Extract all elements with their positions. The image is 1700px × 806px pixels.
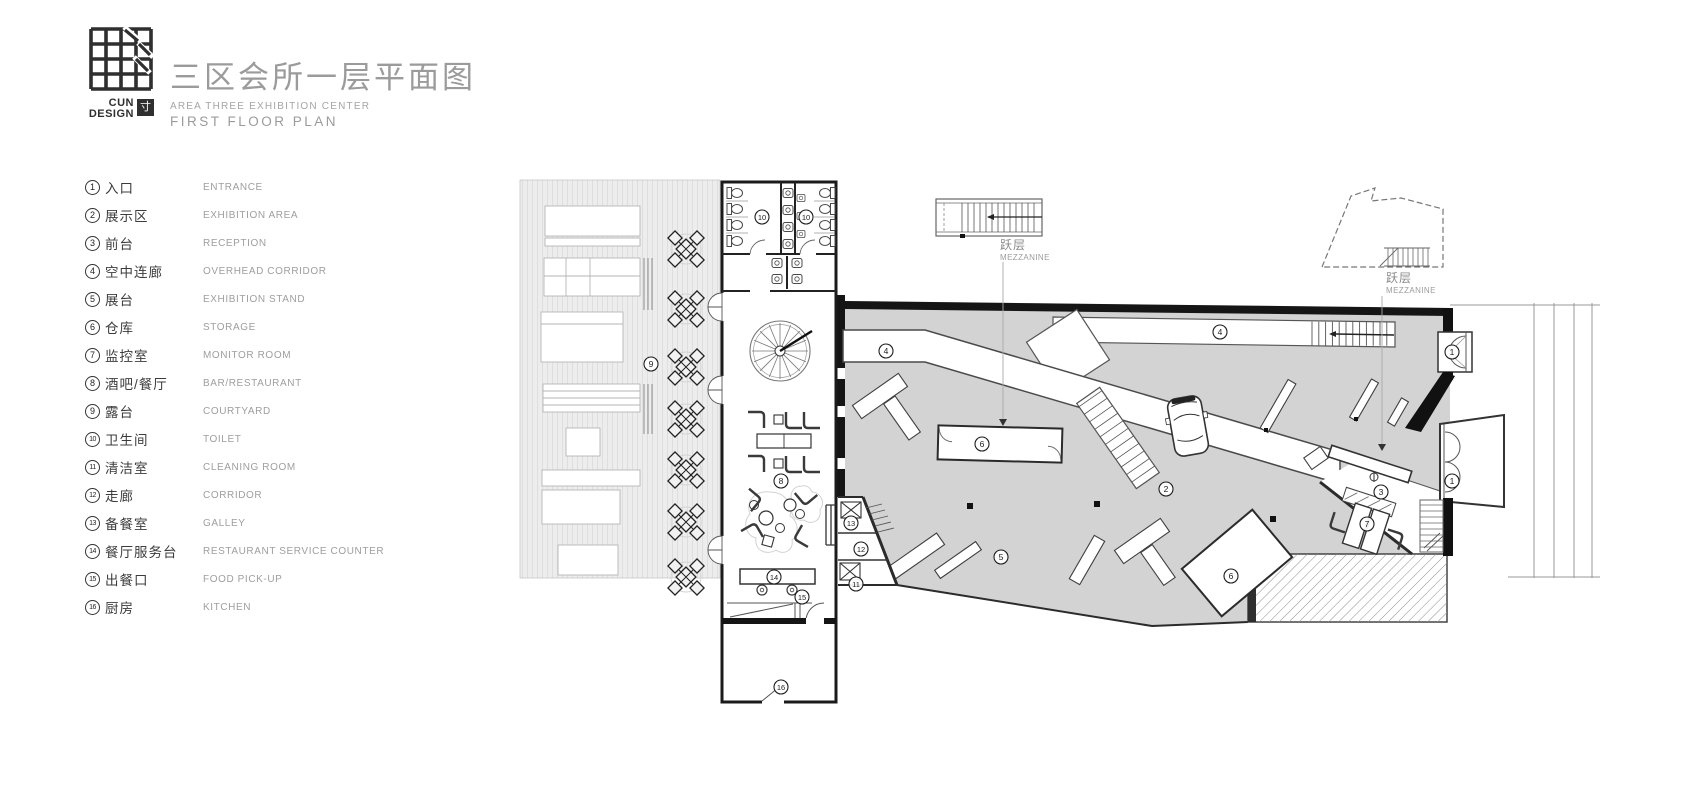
svg-text:12: 12 <box>857 545 865 554</box>
floor-plan-sheet: CUN DESIGN 寸 三区会所一层平面图 AREA THREE EXHIBI… <box>0 0 1700 806</box>
plan-label-overhead-corridor: 4 <box>879 344 893 358</box>
plan-label-reception: 3 <box>1374 485 1388 499</box>
plan-label-entrance: 1 <box>1445 474 1459 488</box>
svg-text:15: 15 <box>798 593 806 602</box>
plan-label-exhibition-stand: 5 <box>994 550 1008 564</box>
plan-label-restaurant-service-counter: 14 <box>767 570 781 584</box>
bar-restaurant-building <box>708 182 836 705</box>
storage-room-center <box>938 425 1063 462</box>
svg-text:2: 2 <box>1164 484 1169 494</box>
floor-plan-drawing: 跃层MEZZANINE跃层MEZZANINE 91010448131211141… <box>0 0 1700 806</box>
plan-label-cleaning-room: 11 <box>849 577 863 591</box>
svg-text:8: 8 <box>779 476 784 486</box>
mezzanine-bridge-drawing <box>936 199 1042 238</box>
svg-text:5: 5 <box>999 552 1004 562</box>
svg-text:6: 6 <box>980 439 985 449</box>
plan-label-bar-restaurant: 8 <box>774 474 788 488</box>
svg-text:16: 16 <box>777 683 785 692</box>
plan-label-courtyard: 9 <box>644 357 658 371</box>
svg-text:6: 6 <box>1229 571 1234 581</box>
svg-text:跃层: 跃层 <box>1000 238 1026 252</box>
courtyard-terrace <box>520 180 720 595</box>
plan-label-storage: 6 <box>1224 569 1238 583</box>
entrance-vestibule-south <box>1440 415 1504 507</box>
plan-label-corridor: 12 <box>854 542 868 556</box>
svg-text:9: 9 <box>649 359 654 369</box>
plan-label-toilet: 10 <box>755 210 769 224</box>
mezzanine-label: 跃层MEZZANINE <box>1000 238 1050 262</box>
plan-label-toilet: 10 <box>799 210 813 224</box>
plan-label-overhead-corridor: 4 <box>1213 325 1227 339</box>
svg-text:1: 1 <box>1450 476 1455 486</box>
svg-text:MEZZANINE: MEZZANINE <box>1000 253 1050 262</box>
svg-text:10: 10 <box>802 213 810 222</box>
section-marker <box>1370 472 1378 482</box>
plan-label-exhibition-area: 2 <box>1159 482 1173 496</box>
svg-text:14: 14 <box>770 573 778 582</box>
plan-label-galley: 13 <box>844 516 858 530</box>
svg-text:11: 11 <box>852 580 860 589</box>
svg-text:MEZZANINE: MEZZANINE <box>1386 286 1436 295</box>
exhibition-hall <box>836 262 1504 626</box>
plan-label-monitor-room: 7 <box>1360 517 1374 531</box>
southeast-staircase <box>1420 500 1443 552</box>
svg-text:4: 4 <box>1218 327 1223 337</box>
svg-text:13: 13 <box>847 519 855 528</box>
plan-label-food-pick-up: 15 <box>795 590 809 604</box>
plan-label-kitchen: 16 <box>774 680 788 694</box>
svg-text:4: 4 <box>884 346 889 356</box>
svg-text:3: 3 <box>1379 487 1384 497</box>
svg-text:1: 1 <box>1450 347 1455 357</box>
plan-label-entrance: 1 <box>1445 345 1459 359</box>
plan-label-storage: 6 <box>975 437 989 451</box>
svg-text:7: 7 <box>1365 519 1370 529</box>
mezzanine-outline-drawing <box>1322 188 1443 267</box>
svg-text:10: 10 <box>758 213 766 222</box>
mezzanine-label: 跃层MEZZANINE <box>1386 271 1436 295</box>
svg-text:跃层: 跃层 <box>1386 271 1412 285</box>
